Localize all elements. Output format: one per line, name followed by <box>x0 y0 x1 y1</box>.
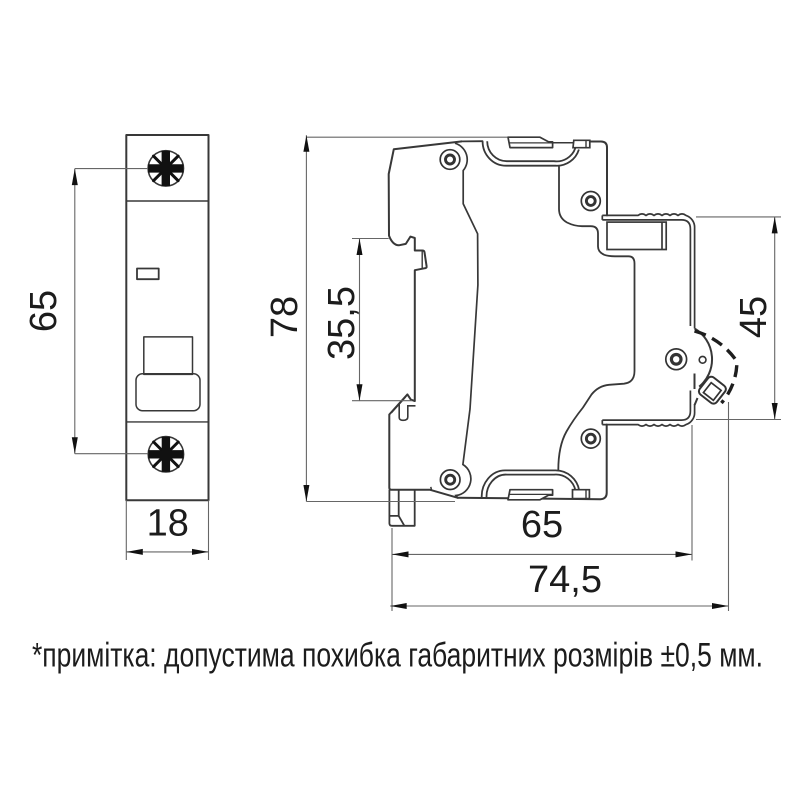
svg-text:35,5: 35,5 <box>321 286 363 360</box>
svg-text:65: 65 <box>521 504 563 546</box>
svg-text:45: 45 <box>733 296 775 338</box>
svg-text:18: 18 <box>147 502 189 544</box>
svg-text:78: 78 <box>264 296 306 338</box>
svg-text:74,5: 74,5 <box>528 559 602 601</box>
svg-text:*примітка: допустима похибка г: *примітка: допустима похибка габаритних … <box>32 636 763 674</box>
svg-text:65: 65 <box>23 290 65 332</box>
